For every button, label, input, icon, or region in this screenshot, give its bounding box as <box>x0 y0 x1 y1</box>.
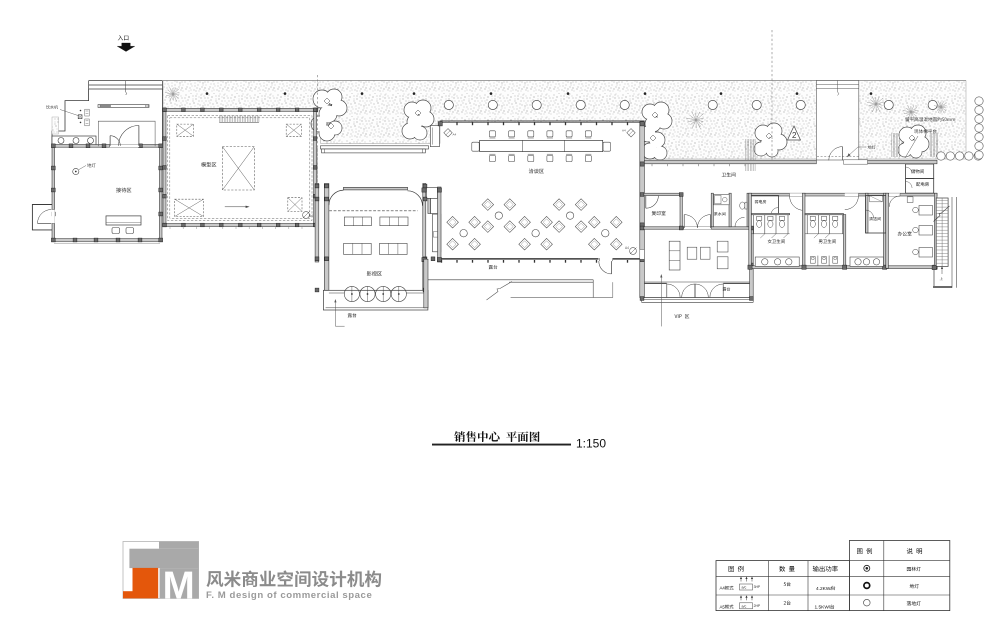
svg-text:F. M design of commercial spac: F. M design of commercial space <box>206 590 372 601</box>
svg-text:M: M <box>163 564 195 607</box>
svg-text:A4: A4 <box>622 129 626 133</box>
svg-text:A5: A5 <box>720 604 726 609</box>
svg-text:A4: A4 <box>453 133 457 137</box>
svg-text:1:150: 1:150 <box>576 437 606 451</box>
svg-text:4.2KW/: 4.2KW/ <box>816 586 832 592</box>
svg-text:2HP: 2HP <box>754 604 761 608</box>
svg-text:A4: A4 <box>309 214 313 218</box>
svg-text:3HP: 3HP <box>754 585 761 589</box>
svg-text:2: 2 <box>792 131 797 140</box>
svg-text:A4: A4 <box>625 246 629 250</box>
svg-text:A4: A4 <box>720 586 726 591</box>
svg-text:a/c: a/c <box>742 605 747 609</box>
svg-text:1.5KW/: 1.5KW/ <box>815 605 831 611</box>
svg-text:a/c: a/c <box>742 586 747 590</box>
